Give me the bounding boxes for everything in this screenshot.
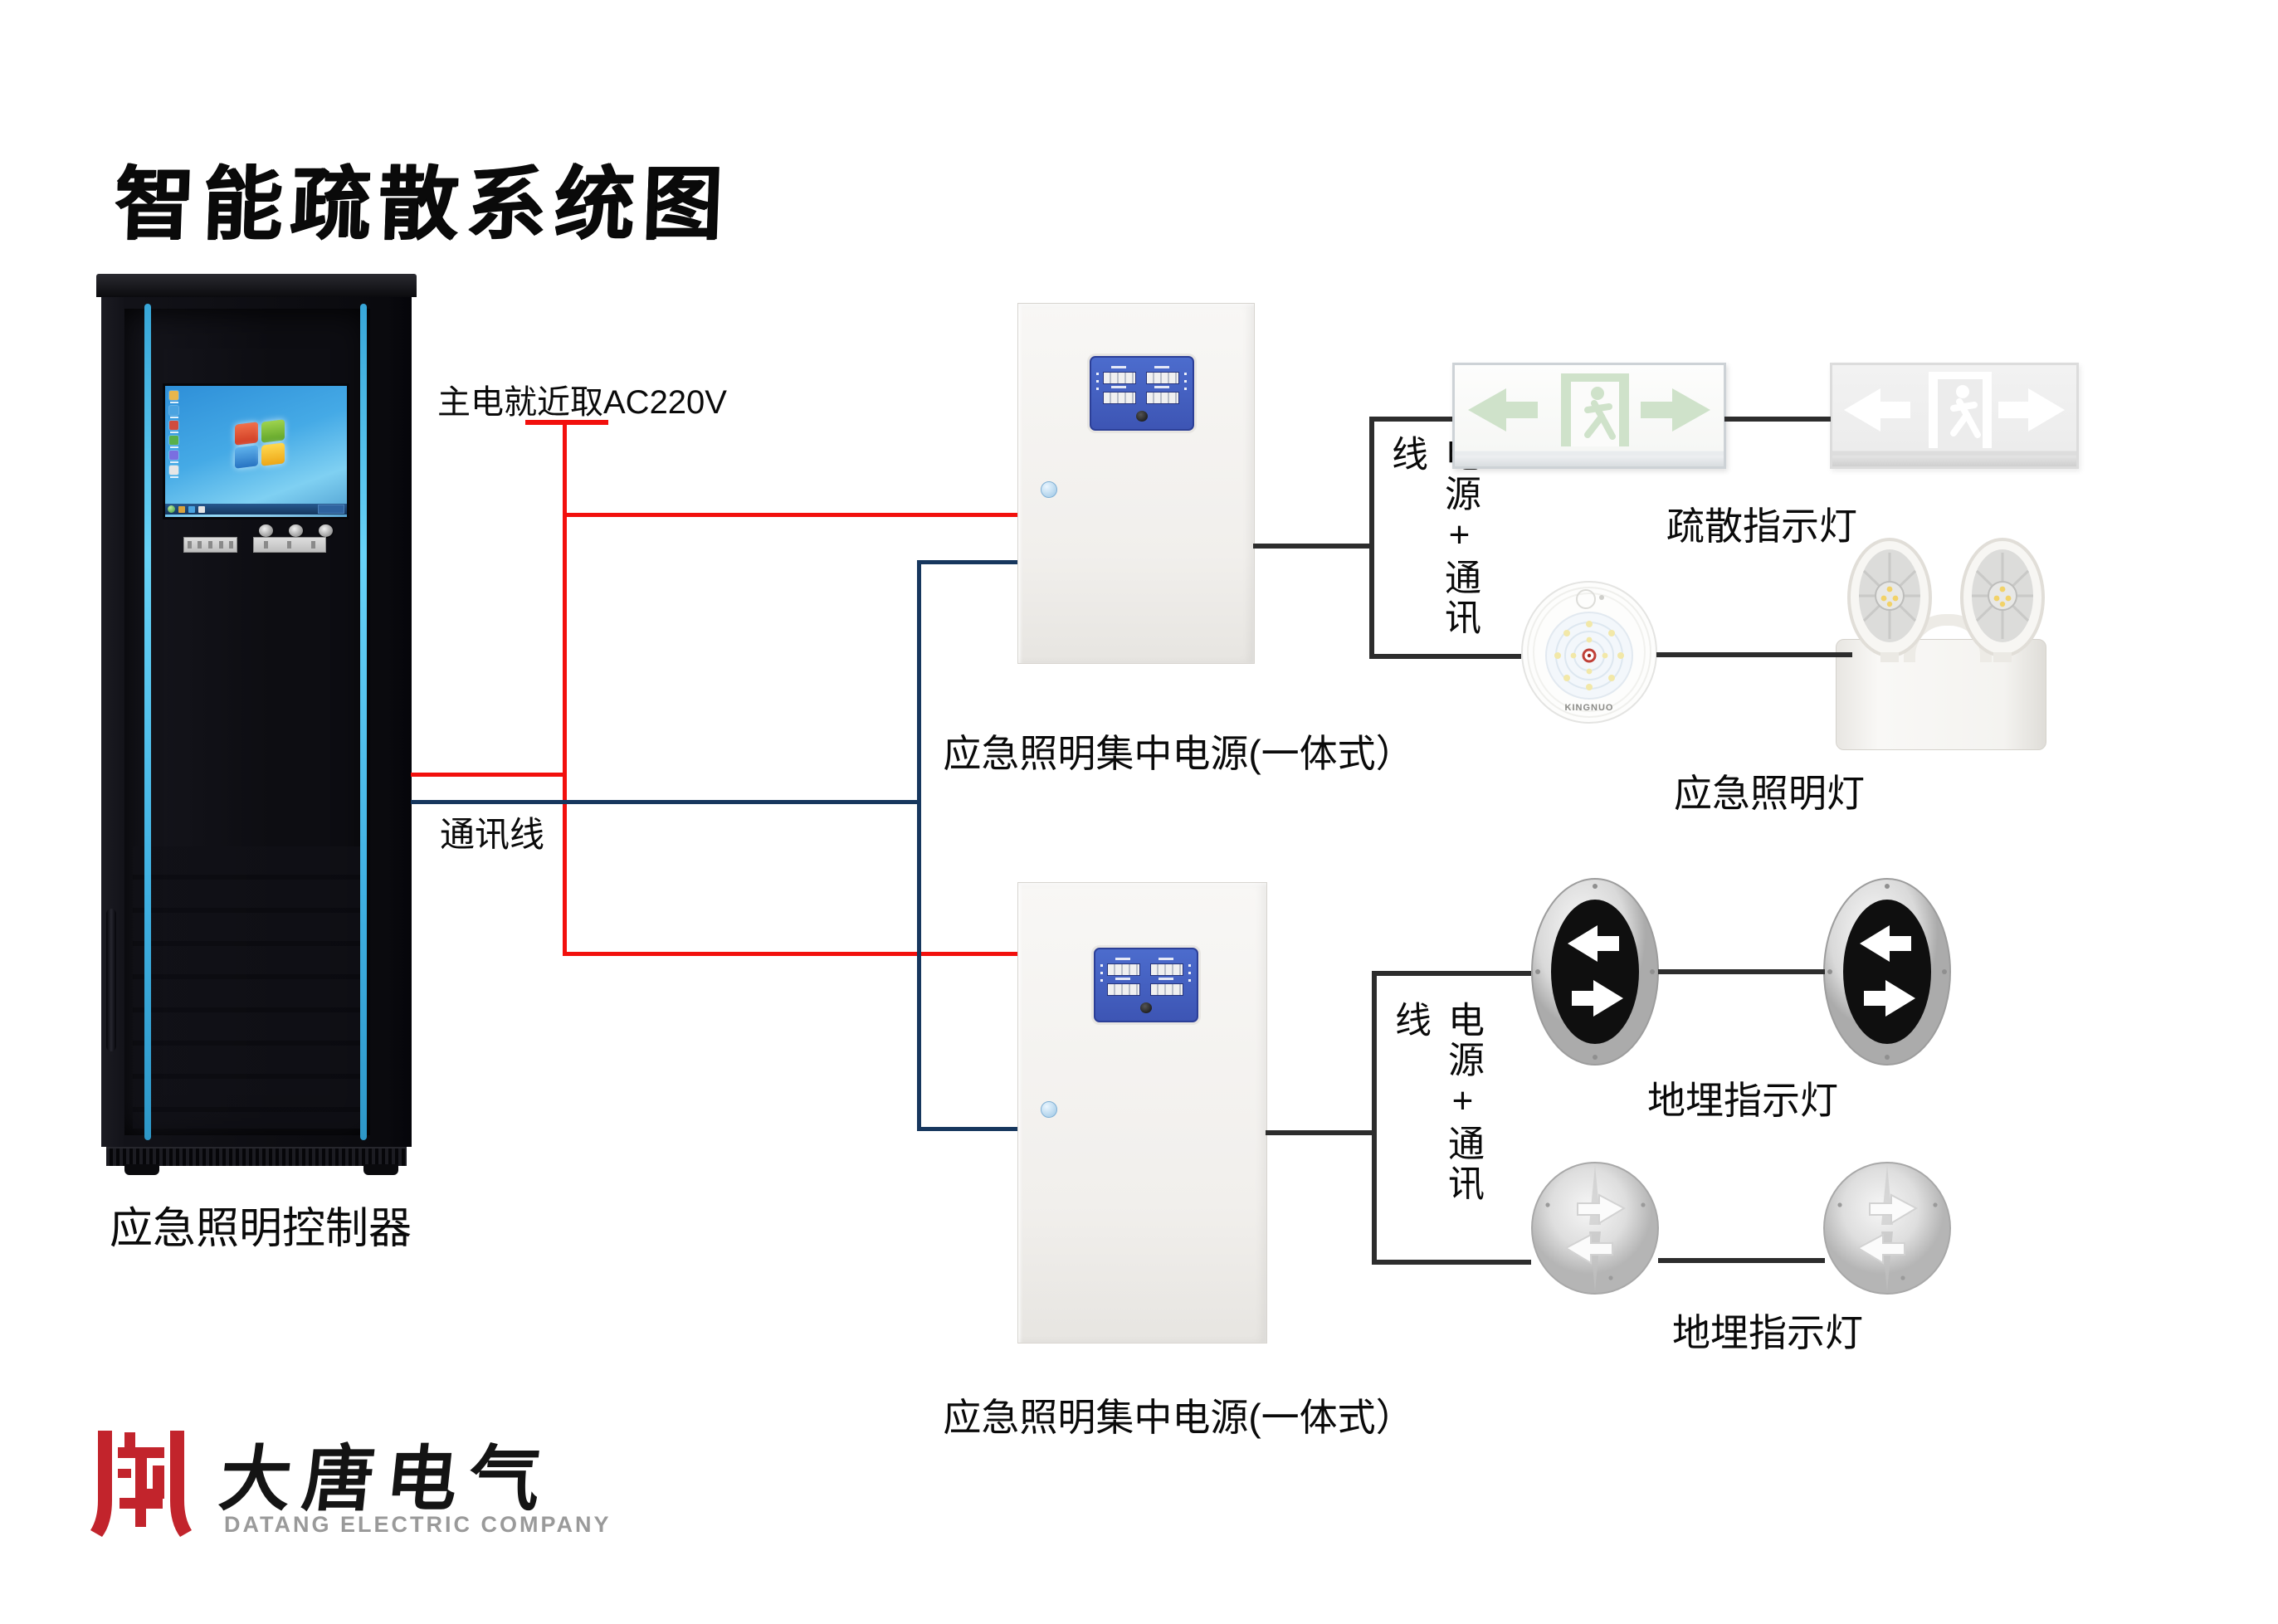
psu2-output-line: [1266, 1130, 1372, 1135]
psu2-control-panel: [1094, 948, 1198, 1022]
psu2-enclosure: [1017, 882, 1267, 1344]
cabinet-led-strip-left: [144, 304, 151, 1140]
desktop-icon: [169, 421, 178, 430]
psu1-output-line: [1253, 544, 1369, 549]
psu1-knob: [1136, 411, 1148, 422]
logo-emblem-icon: [83, 1419, 199, 1552]
bus2-vertical: [1372, 971, 1377, 1265]
comm-line-to-psu1: [919, 560, 1017, 564]
comm-line-to-psu2: [919, 1127, 1017, 1131]
desktop-icon: [169, 451, 178, 460]
bus1-to-exit-signs: [1374, 417, 1454, 422]
evacuation-system-diagram: { "title": "智能疏散系统图", "colors": { "power…: [0, 0, 2278, 1624]
cabinet-led-strip-right: [360, 304, 367, 1140]
taskbar-clock: [318, 505, 344, 514]
taskbar-icon: [178, 506, 185, 513]
power-line-from-cabinet: [411, 773, 565, 777]
page-title: 智能疏散系统图: [113, 139, 733, 255]
exit-sign-white: [1830, 363, 2079, 469]
cabinet-knob: [319, 524, 333, 537]
round-emergency-lamp: KINGNUO: [1521, 581, 1658, 724]
psu1-control-panel: [1090, 356, 1194, 431]
buried-arrow-light-2: [1823, 877, 1952, 1070]
cabinet-knob: [289, 524, 303, 537]
bus2-to-buried-flush-lights: [1377, 1260, 1531, 1265]
power-line-vertical: [563, 422, 567, 956]
logo-company-name-en: DATANG ELECTRIC COMPANY: [224, 1512, 612, 1538]
cabinet-knob: [259, 524, 273, 537]
cabinet-door-handle: [106, 909, 116, 1051]
buried-lights-label-1: 地埋指示灯: [1618, 1070, 1867, 1125]
cabinet-foot: [124, 1164, 159, 1175]
twin-lamp-head-right: [1960, 538, 2045, 662]
bus1-to-lamps: [1374, 654, 1521, 659]
buried-flush-light-1: [1531, 1162, 1660, 1299]
psu2-knob: [1140, 1002, 1152, 1013]
cabinet-terminal-strip: [253, 537, 326, 553]
line-lamp-to-twin: [1656, 652, 1852, 657]
comm-line-label: 通讯线: [440, 807, 544, 857]
psu1-lock-icon: [1041, 481, 1057, 498]
power-line-to-psu2: [565, 952, 1018, 956]
cabinet-switch-strip: [183, 537, 237, 553]
desktop-icon: [169, 406, 178, 415]
controller-label: 应急照明控制器: [98, 1193, 423, 1256]
cabinet-vent: [106, 1147, 407, 1166]
bus2-to-buried-arrow-lights: [1377, 971, 1531, 976]
twin-lamp-head-left: [1847, 538, 1932, 662]
desktop-icon: [169, 436, 178, 445]
power-line-to-psu1: [565, 513, 1017, 517]
start-orb-icon: [168, 505, 175, 513]
psu2-lock-icon: [1041, 1101, 1057, 1118]
cabinet-foot: [363, 1164, 398, 1175]
taskbar-icon: [188, 506, 195, 513]
desktop-icons: [169, 391, 178, 475]
psu1-enclosure: [1017, 303, 1255, 664]
buried-lights-label-2: 地埋指示灯: [1643, 1303, 1892, 1358]
comm-line-from-cabinet: [411, 800, 921, 804]
psu1-label: 应急照明集中电源(一体式）: [929, 724, 1427, 778]
line-sign1-sign2: [1724, 417, 1831, 422]
taskbar-icon: [198, 506, 205, 513]
cabinet-top-cap: [96, 274, 417, 297]
bus1-vertical: [1369, 417, 1374, 659]
bus2-label: 电源+通讯线: [1383, 1001, 1489, 1241]
buried-arrow-light-1: [1531, 877, 1660, 1070]
line-between-flush-lights: [1658, 1258, 1825, 1263]
cabinet-monitor: [163, 383, 349, 519]
main-power-label: 主电就近取AC220V: [437, 375, 727, 423]
sign-frame-bottom: [1832, 456, 2076, 466]
sign-frame-bottom: [1455, 456, 1724, 466]
logo-company-name-cn: 大唐电气: [215, 1421, 558, 1524]
emergency-lamps-label: 应急照明灯: [1645, 763, 1894, 818]
windows-logo-icon: [235, 421, 286, 467]
exit-sign-green: [1452, 363, 1726, 469]
buried-flush-light-2: [1823, 1162, 1952, 1299]
cabinet-rack-shelves: [133, 846, 362, 1129]
desktop-icon: [169, 466, 178, 475]
desktop-icon: [169, 391, 178, 400]
lamp-brand-text: KINGNUO: [1565, 703, 1614, 713]
taskbar: [165, 504, 347, 515]
comm-line-vertical: [917, 560, 921, 1131]
psu2-label: 应急照明集中电源(一体式）: [929, 1387, 1427, 1442]
line-between-arrow-lights: [1658, 969, 1825, 974]
